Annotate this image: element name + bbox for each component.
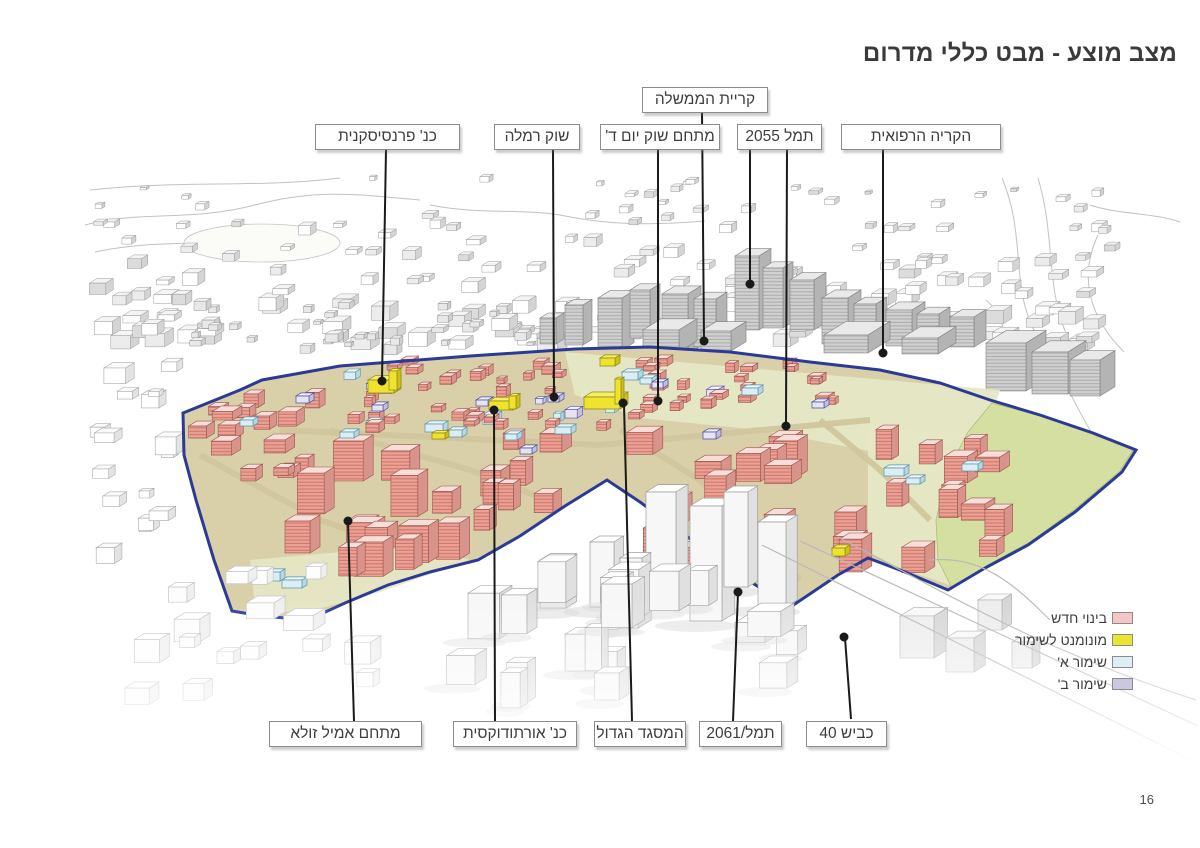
legend-label: מונומנט לשימור	[1015, 633, 1107, 647]
legend-item-monument: מונומנט לשימור	[1015, 633, 1133, 647]
callout-shuk-ramla: שוק רמלה	[494, 124, 580, 150]
leader-dot-shuk-ramla	[551, 394, 558, 401]
callout-franciscan-church: כנ' פרנסיסקנית	[315, 124, 460, 150]
leader-dot-medical-campus	[880, 350, 887, 357]
leader-dot-great-mosque	[620, 400, 627, 407]
leader-dot-road-40	[841, 634, 848, 641]
callout-kiryat-hamemshala: קריית הממשלה	[642, 87, 768, 113]
legend-swatch-monument	[1112, 634, 1133, 646]
leader-dot-taml-2055-a	[747, 281, 754, 288]
callout-orthodox-church: כנ' אורתודוקסית	[453, 721, 577, 747]
callout-taml-2055: תמל 2055	[737, 124, 822, 150]
leader-dot-emil-zola	[345, 518, 352, 525]
legend-swatch-preservation-a	[1112, 656, 1133, 668]
slide: מצב מוצע - מבט כללי מדרום קריית הממשלה כ…	[0, 0, 1200, 848]
leader-orthodox-church	[494, 411, 495, 721]
callout-road-40: כביש 40	[806, 721, 887, 747]
legend-item-new-construction: בינוי חדש	[1015, 611, 1133, 625]
leader-shuk-ramla	[553, 150, 554, 396]
leader-dot-taml-2061	[735, 589, 742, 596]
callout-emil-zola: מתחם אמיל זולא	[269, 721, 422, 747]
leader-dot-shuk-yom-d	[655, 398, 662, 405]
legend-label: שימור ב'	[1058, 677, 1107, 691]
leader-dot-kiryat-hamemshala	[701, 338, 708, 345]
callout-great-mosque: המסגד הגדול	[594, 721, 686, 747]
legend-label: שימור א'	[1057, 655, 1107, 669]
callout-medical-campus: הקריה הרפואית	[841, 124, 1001, 150]
leader-dot-franciscan-church	[379, 378, 386, 385]
page-number: 16	[1140, 792, 1154, 807]
page-title: מצב מוצע - מבט כללי מדרום	[863, 40, 1177, 68]
leader-taml-2055-b	[786, 150, 787, 425]
legend-swatch-new-construction	[1112, 612, 1133, 624]
legend-label: בינוי חדש	[1051, 611, 1107, 625]
callout-taml-2061: תמל/2061	[699, 721, 782, 747]
leader-dot-taml-2055-b	[783, 423, 790, 430]
legend-item-preservation-a: שימור א'	[1015, 655, 1133, 669]
legend: בינוי חדש מונומנט לשימור שימור א' שימור …	[1015, 611, 1133, 691]
legend-item-preservation-b: שימור ב'	[1015, 677, 1133, 691]
callout-shuk-yom-d: מתחם שוק יום ד'	[600, 124, 720, 150]
legend-swatch-preservation-b	[1112, 678, 1133, 690]
leader-dot-orthodox-church	[491, 407, 498, 414]
